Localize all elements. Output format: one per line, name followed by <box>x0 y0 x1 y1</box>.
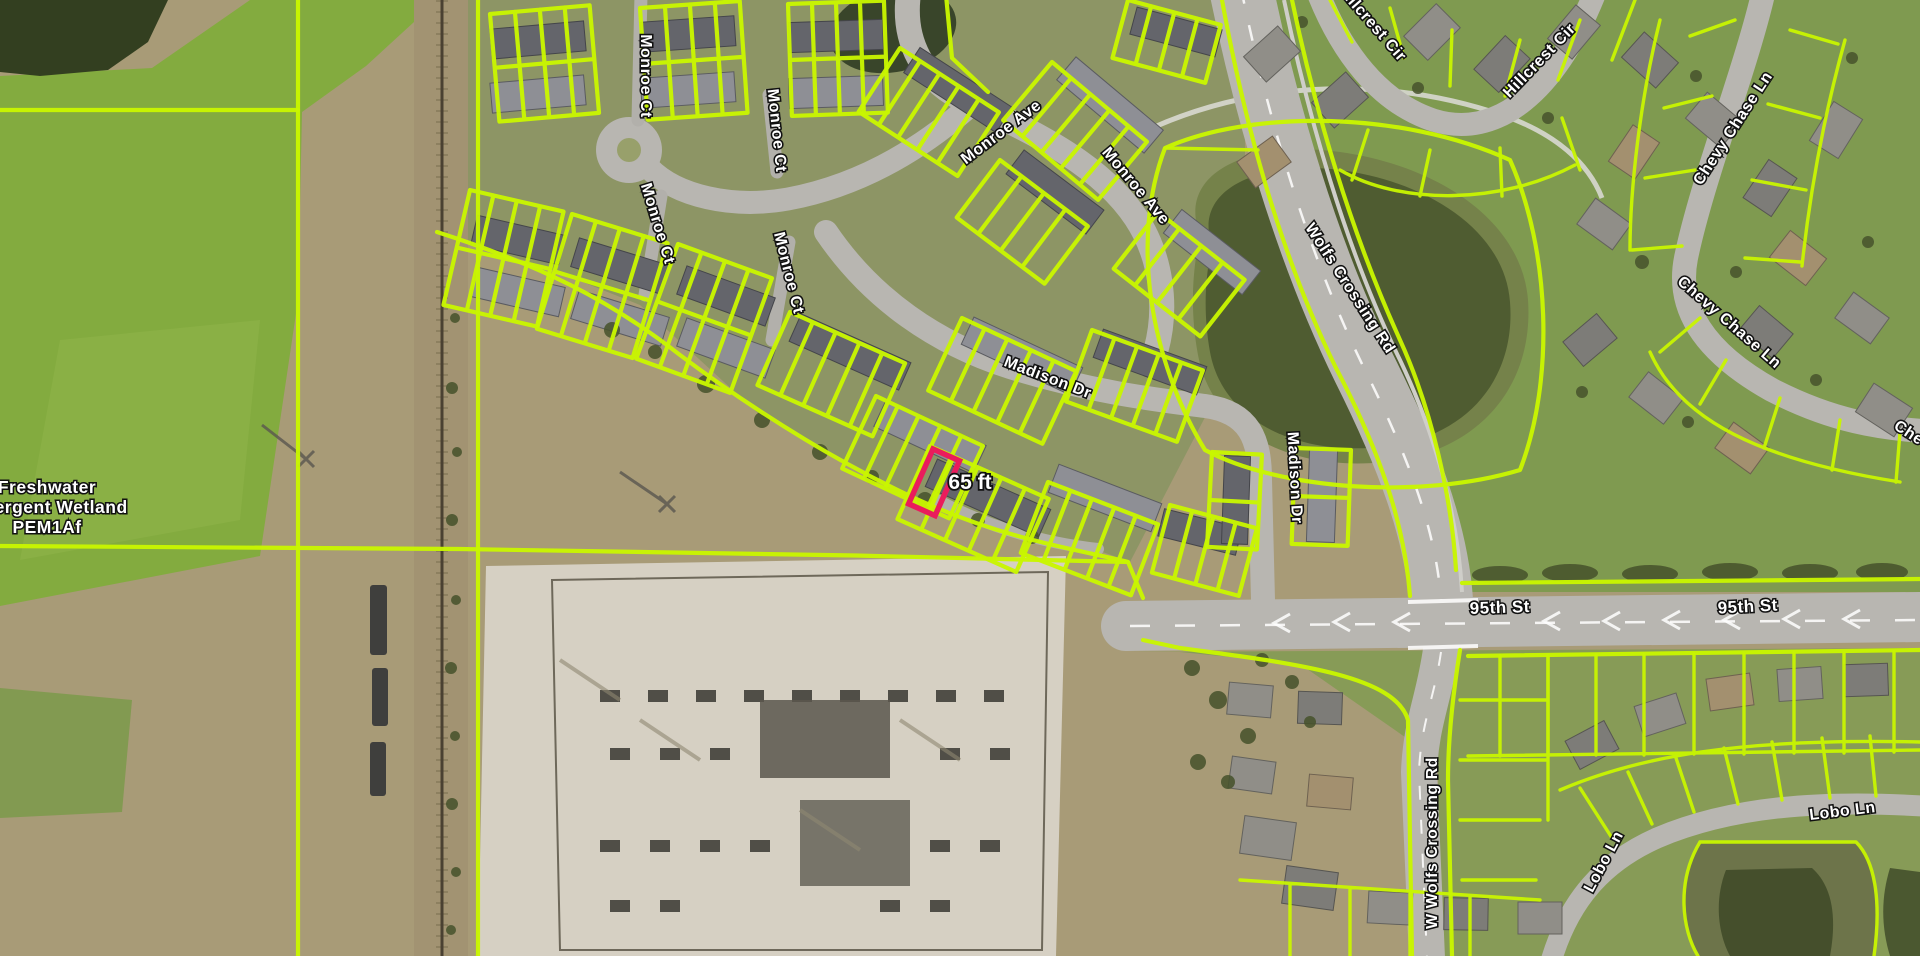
w-wolfs-crossing-rd-label: W Wolfs Crossing Rd <box>1424 757 1441 929</box>
ninety-fifth-st-a-label: 95th St <box>1469 597 1530 618</box>
road-95th-st <box>1126 617 1920 626</box>
highlight-measurement-label: 65 ft <box>948 471 991 494</box>
aerial-parcel-map[interactable]: Monroe CtMonroe CtMonroe CtMonroe CtMonr… <box>0 0 1920 956</box>
wetland-line-2-label: Emergent Wetland <box>0 497 128 517</box>
substation <box>478 556 1066 956</box>
wetland-line-3-label: PEM1Af <box>12 517 81 537</box>
map-canvas[interactable]: Monroe CtMonroe CtMonroe CtMonroe CtMonr… <box>0 0 1920 956</box>
wetland-line-1-label: Freshwater <box>0 477 96 497</box>
rail-cars <box>370 585 388 796</box>
monroe-ct-a-label: Monroe Ct <box>637 34 654 118</box>
ninety-fifth-st-b-label: 95th St <box>1717 595 1778 617</box>
